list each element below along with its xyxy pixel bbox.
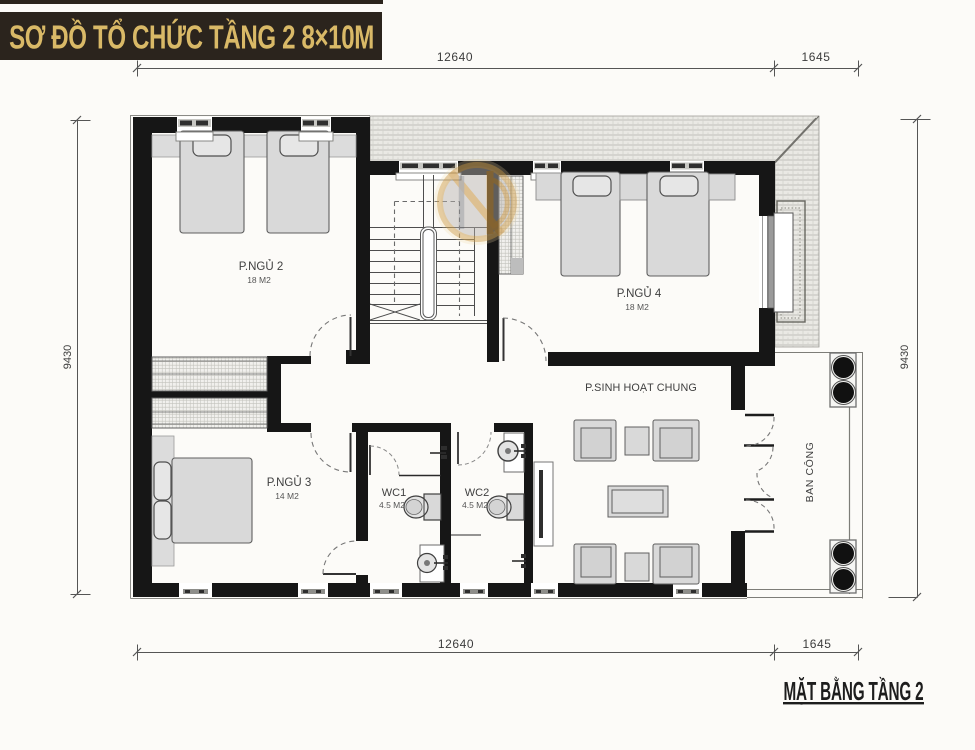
svg-text:12640: 12640 — [437, 50, 473, 64]
svg-text:SƠ ĐỒ TỔ CHỨC TẦNG 2 8×10M: SƠ ĐỒ TỔ CHỨC TẦNG 2 8×10M — [9, 18, 374, 57]
svg-text:4.5 M2: 4.5 M2 — [462, 500, 488, 510]
svg-text:WC2: WC2 — [465, 487, 489, 499]
svg-text:P.NGỦ 3: P.NGỦ 3 — [267, 476, 312, 489]
svg-text:9430: 9430 — [62, 345, 74, 369]
svg-text:18 M2: 18 M2 — [625, 302, 649, 312]
svg-text:1645: 1645 — [802, 637, 831, 651]
svg-text:P.SINH HOẠT CHUNG: P.SINH HOẠT CHUNG — [585, 382, 697, 394]
svg-text:BAN CÔNG: BAN CÔNG — [803, 442, 816, 503]
svg-text:1645: 1645 — [801, 50, 830, 64]
svg-text:P.NGỦ 4: P.NGỦ 4 — [617, 287, 662, 300]
svg-text:MẶT BẰNG TẦNG 2: MẶT BẰNG TẦNG 2 — [783, 677, 923, 706]
svg-text:P.NGỦ 2: P.NGỦ 2 — [239, 260, 284, 273]
svg-text:WC1: WC1 — [382, 487, 406, 499]
svg-text:9430: 9430 — [899, 345, 911, 369]
svg-text:4.5 M2: 4.5 M2 — [379, 500, 405, 510]
svg-text:18 M2: 18 M2 — [247, 275, 271, 285]
svg-text:12640: 12640 — [438, 637, 474, 651]
svg-text:14 M2: 14 M2 — [275, 491, 299, 501]
